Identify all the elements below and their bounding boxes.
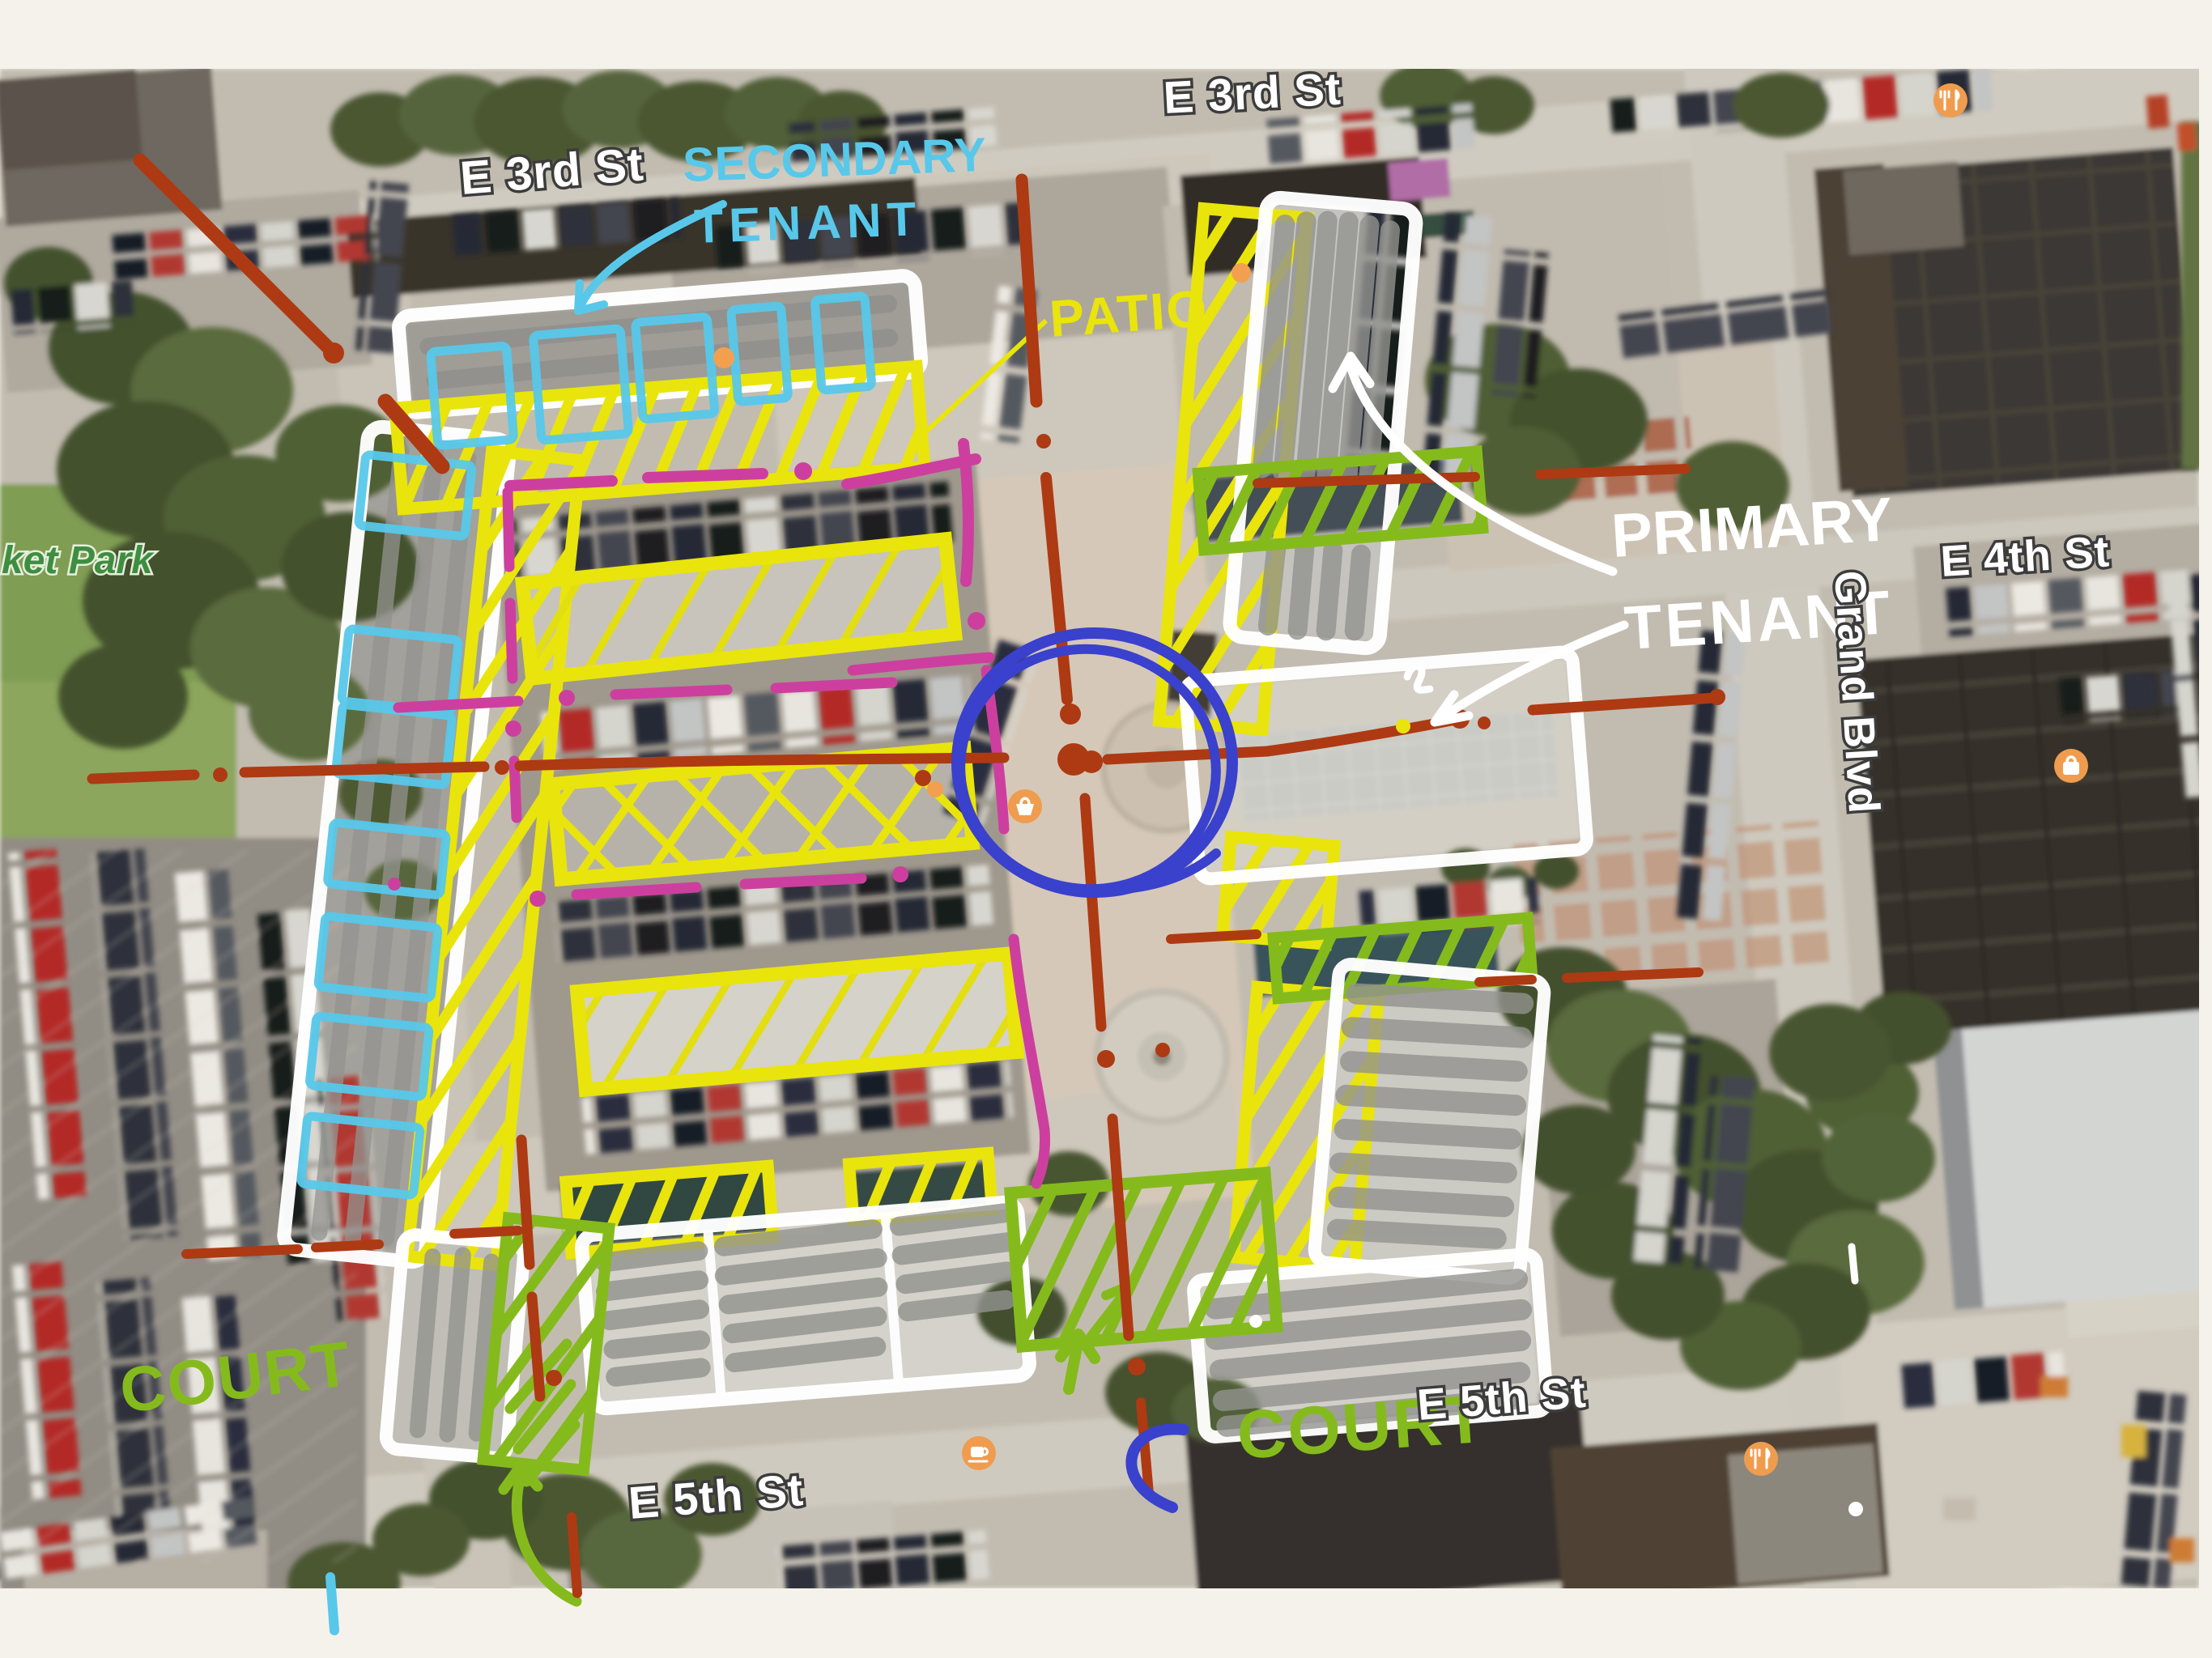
svg-text:PATIO: PATIO (1048, 278, 1210, 348)
svg-text:SECONDARY: SECONDARY (682, 128, 987, 192)
svg-text:TENANT: TENANT (693, 192, 922, 253)
svg-text:E 4th St: E 4th St (1939, 527, 2111, 586)
svg-text:E 3rd St: E 3rd St (1162, 63, 1342, 123)
svg-text:ket Park: ket Park (2, 539, 155, 582)
